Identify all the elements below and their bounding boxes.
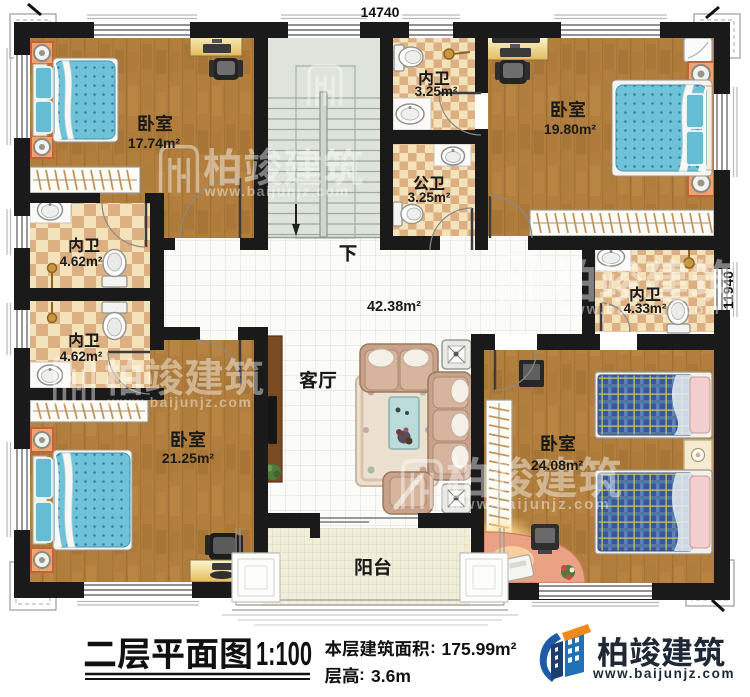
svg-text:www.baijunjz.com: www.baijunjz.com <box>448 496 610 513</box>
svg-text:1:100: 1:100 <box>256 635 312 672</box>
svg-text:14740: 14740 <box>361 4 400 20</box>
svg-text:4.33m²: 4.33m² <box>624 301 667 316</box>
svg-text:3.6m: 3.6m <box>371 666 411 686</box>
svg-text:www.baijunjz.com: www.baijunjz.com <box>592 666 735 681</box>
svg-text:21.25m²: 21.25m² <box>162 450 214 466</box>
svg-text:www.baijunjz.com: www.baijunjz.com <box>107 394 253 410</box>
svg-text:175.99m²: 175.99m² <box>442 639 517 659</box>
svg-text:4.62m²: 4.62m² <box>60 254 103 269</box>
svg-text::: : <box>430 638 436 657</box>
svg-text:4.62m²: 4.62m² <box>60 349 103 364</box>
svg-text:24.08m²: 24.08m² <box>531 457 583 473</box>
svg-text:19.80m²: 19.80m² <box>544 121 596 137</box>
svg-text:3.25m²: 3.25m² <box>408 190 451 205</box>
svg-text:42.38m²: 42.38m² <box>367 299 421 315</box>
svg-text::: : <box>359 665 365 684</box>
svg-text:3.25m²: 3.25m² <box>415 84 458 99</box>
svg-text:www.baijunjz.com: www.baijunjz.com <box>204 183 350 199</box>
svg-text:17.74m²: 17.74m² <box>128 135 180 151</box>
